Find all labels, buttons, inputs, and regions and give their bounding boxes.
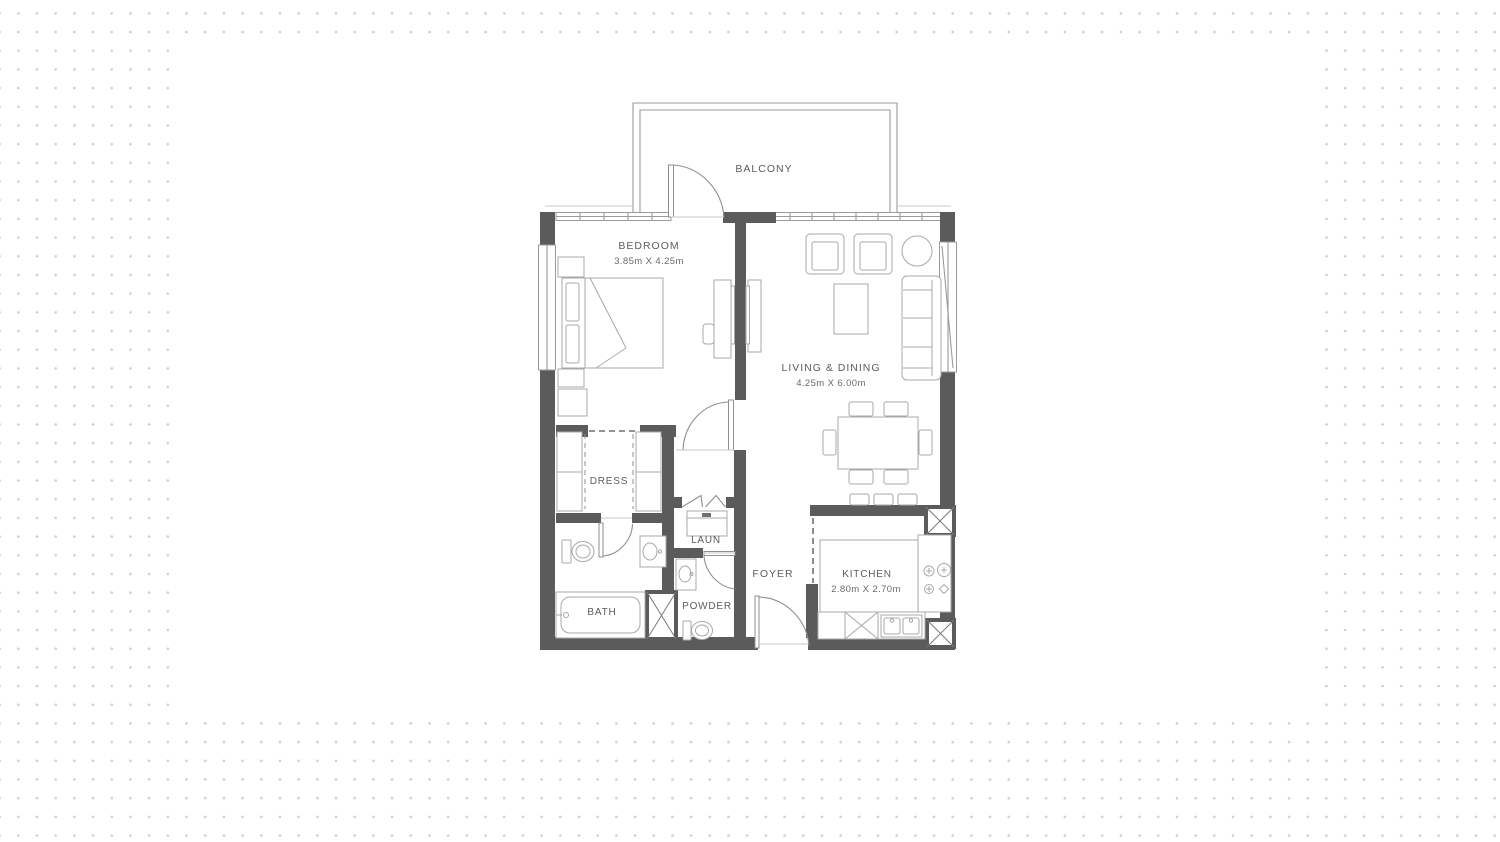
room-label-kitchen: KITCHEN	[842, 569, 892, 580]
bedroom-desk	[703, 280, 735, 358]
dining-chair	[849, 470, 873, 484]
powder-toilet	[683, 621, 713, 640]
bar-stool	[874, 494, 893, 505]
floor-plan-drawing: BALCONY BEDROOM 3.85m X 4.25m LIVING & D…	[0, 0, 1500, 842]
dining-table	[838, 417, 918, 469]
armchair	[854, 234, 892, 274]
washing-machine	[687, 511, 727, 536]
nightstand	[558, 369, 584, 387]
dining-chair	[884, 470, 908, 484]
powder-door	[703, 552, 735, 590]
bedroom-door	[676, 400, 734, 450]
plant	[902, 236, 932, 266]
laundry-bifold-doors	[682, 496, 726, 508]
bedroom-dresser	[558, 389, 587, 416]
room-label-bath: BATH	[587, 607, 616, 618]
shaft-bath	[647, 592, 676, 639]
coffee-table	[834, 284, 868, 334]
shaft-kitchen-bottom	[927, 620, 954, 647]
room-dims-kitchen: 2.80m X 2.70m	[831, 584, 901, 595]
kitchen-sink	[881, 615, 922, 637]
bar-stool	[850, 494, 869, 505]
room-label-bedroom: BEDROOM	[618, 240, 679, 252]
armchair	[806, 234, 844, 274]
floor-plan-page: BALCONY BEDROOM 3.85m X 4.25m LIVING & D…	[0, 0, 1500, 842]
room-label-laundry: LAUN	[691, 535, 721, 546]
entry-door	[755, 596, 809, 648]
toilet	[562, 540, 594, 563]
room-label-dress: DRESS	[590, 476, 628, 487]
bath-door	[599, 518, 633, 557]
dining-chair	[823, 430, 836, 455]
room-label-balcony: BALCONY	[735, 163, 792, 175]
tv-unit	[746, 280, 761, 352]
sofa	[902, 276, 941, 380]
room-dims-living-dining: 4.25m X 6.00m	[796, 378, 866, 389]
powder-sink	[676, 559, 696, 590]
shaft-kitchen-top	[926, 507, 954, 535]
dining-chair	[849, 402, 873, 416]
room-label-foyer: FOYER	[752, 568, 793, 580]
wardrobe	[557, 432, 661, 511]
nightstand	[558, 257, 584, 277]
bar-stool	[898, 494, 917, 505]
dining-chair	[919, 430, 932, 455]
bath-washbasin	[640, 536, 666, 567]
kitchen-counter-right	[918, 535, 951, 612]
room-label-living-dining: LIVING & DINING	[781, 362, 880, 374]
bed	[562, 278, 663, 368]
room-label-powder: POWDER	[682, 601, 732, 612]
balcony-door	[669, 165, 725, 217]
dining-chair	[884, 402, 908, 416]
room-dims-bedroom: 3.85m X 4.25m	[614, 256, 684, 267]
